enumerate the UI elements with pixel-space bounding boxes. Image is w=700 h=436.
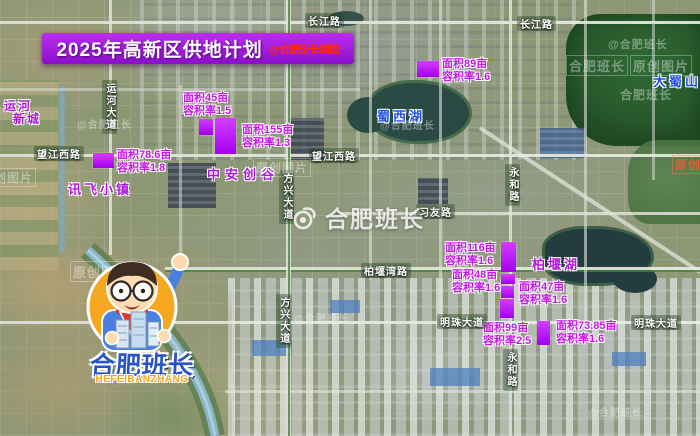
- mascot-building-2: [131, 312, 146, 348]
- road-label-mingzhu-west: 明珠大道: [437, 314, 487, 329]
- plot-area: 面积47亩: [519, 281, 567, 294]
- mascot-waving-hand: [172, 254, 188, 270]
- mascot-illustration: [72, 250, 202, 354]
- road-minor: [584, 0, 587, 325]
- plot-marker-155mu: [215, 118, 236, 154]
- plot-far: 容积率1.6: [442, 71, 490, 84]
- watermark-original-clipped: 原创图片: [0, 168, 36, 187]
- mascot-logo: 合肥班长 HEFEIBANZHANG: [72, 250, 212, 390]
- watermark-handle: @合肥班长: [608, 36, 668, 52]
- watermark-center-text: 合肥班长: [325, 200, 425, 234]
- plot-far: 容积率1.6: [445, 255, 496, 268]
- plot-marker-47mu: [501, 286, 514, 298]
- watermark-original: 原创图片: [253, 158, 311, 177]
- watermark-handle: @合肥班长: [77, 116, 132, 131]
- place-line2: 新城: [4, 113, 41, 126]
- road-changjiang: [0, 21, 700, 24]
- plot-marker-116mu: [501, 242, 516, 272]
- watermark-handle: @合肥班长: [294, 310, 349, 325]
- plot-marker-78-6mu: [93, 153, 114, 168]
- road-label-wangjiangxi-center: 望江西路: [309, 148, 359, 163]
- plot-label-45mu: 面积45亩 容积率1.5: [183, 92, 231, 118]
- watermark-center: 合肥班长: [291, 200, 425, 234]
- mascot-name-en: HEFEIBANZHANG: [70, 374, 214, 385]
- place-label-xunfei-town: 讯飞小镇: [68, 179, 132, 198]
- plot-marker-99mu: [500, 299, 514, 318]
- plot-area: 面积78.6亩: [117, 149, 171, 162]
- road-minor: [439, 0, 442, 325]
- road-label-mingzhu-east: 明珠大道: [631, 315, 681, 330]
- road-median: [165, 270, 700, 272]
- map-credit: @合肥班长制图: [270, 41, 340, 56]
- road-label-changjiang-east: 长江路: [517, 16, 556, 31]
- plot-far: 容积率2.5: [483, 335, 531, 348]
- watermark-name: 合肥班长: [620, 86, 672, 103]
- plot-label-89mu: 面积89亩 容积率1.6: [442, 58, 490, 84]
- road-label-baiyanwan: 柏堰湾路: [361, 263, 411, 278]
- plot-label-155mu: 面积155亩 容积率1.3: [242, 124, 293, 150]
- plot-far: 容积率1.6: [519, 294, 567, 307]
- map-title: 2025年高新区供地计划: [56, 35, 262, 62]
- plot-label-47mu: 面积47亩 容积率1.6: [519, 281, 567, 307]
- annotated-satellite-map: 面积45亩 容积率1.5 面积155亩 容积率1.3 面积78.6亩 容积率1.…: [0, 0, 700, 436]
- plot-area: 面积45亩: [183, 92, 231, 105]
- road-label-changjiang-west: 长江路: [305, 13, 344, 28]
- watermark-original-orange: 原创图片: [672, 155, 700, 174]
- plot-far: 容积率1.6: [452, 282, 500, 295]
- plot-far: 容积率1.6: [556, 333, 617, 346]
- road-minor: [369, 0, 372, 280]
- place-label-yunhe-newtown: 运河 新城: [4, 100, 41, 126]
- watermark-original: 原创图片: [630, 55, 692, 76]
- watermark-handle: @合肥班长: [380, 117, 435, 132]
- plot-label-99mu: 面积99亩 容积率2.5: [483, 322, 531, 348]
- road-label-yonghe-north: 永和路: [505, 164, 520, 206]
- plot-area: 面积155亩: [242, 124, 293, 137]
- place-label-baiyan-lake: 柏堰湖: [532, 254, 580, 273]
- mascot-eye-right: [141, 289, 145, 293]
- plot-area: 面积99亩: [483, 322, 531, 335]
- plot-area: 面积48亩: [452, 269, 500, 282]
- mascot-hand-right: [158, 330, 171, 343]
- title-banner: 2025年高新区供地计划 @合肥班长制图: [42, 33, 354, 64]
- plot-area: 面积116亩: [445, 242, 496, 255]
- plot-marker-48mu: [501, 274, 515, 284]
- plot-far: 容积率1.5: [183, 105, 231, 118]
- plot-far: 容积率1.8: [117, 162, 171, 175]
- plot-area: 面积73.85亩: [556, 320, 617, 333]
- plot-marker-89mu: [417, 61, 439, 77]
- plot-marker-73-85mu: [537, 321, 550, 345]
- road-minor: [179, 85, 182, 255]
- plot-area: 面积89亩: [442, 58, 490, 71]
- plot-marker-45mu: [199, 119, 213, 135]
- road-label-fangxing-dadao-south: 方兴大道: [276, 294, 291, 348]
- plot-label-48mu: 面积48亩 容积率1.6: [452, 269, 500, 295]
- road-label-yonghe-south: 永和路: [503, 349, 518, 391]
- plot-label-116mu: 面积116亩 容积率1.6: [445, 242, 496, 268]
- watermark-name: 合肥班长: [566, 55, 628, 76]
- road-minor: [225, 390, 700, 393]
- mascot-hand-left: [106, 332, 119, 345]
- mascot-eye-left: [119, 289, 123, 293]
- plot-label-78-6mu: 面积78.6亩 容积率1.8: [117, 149, 171, 175]
- watermark-handle: @合肥班长: [588, 404, 643, 419]
- plot-label-73-85mu: 面积73.85亩 容积率1.6: [556, 320, 617, 346]
- plot-far: 容积率1.3: [242, 137, 293, 150]
- road-label-wangjiangxi-west: 望江西路: [34, 146, 84, 161]
- weibo-icon: [291, 204, 318, 231]
